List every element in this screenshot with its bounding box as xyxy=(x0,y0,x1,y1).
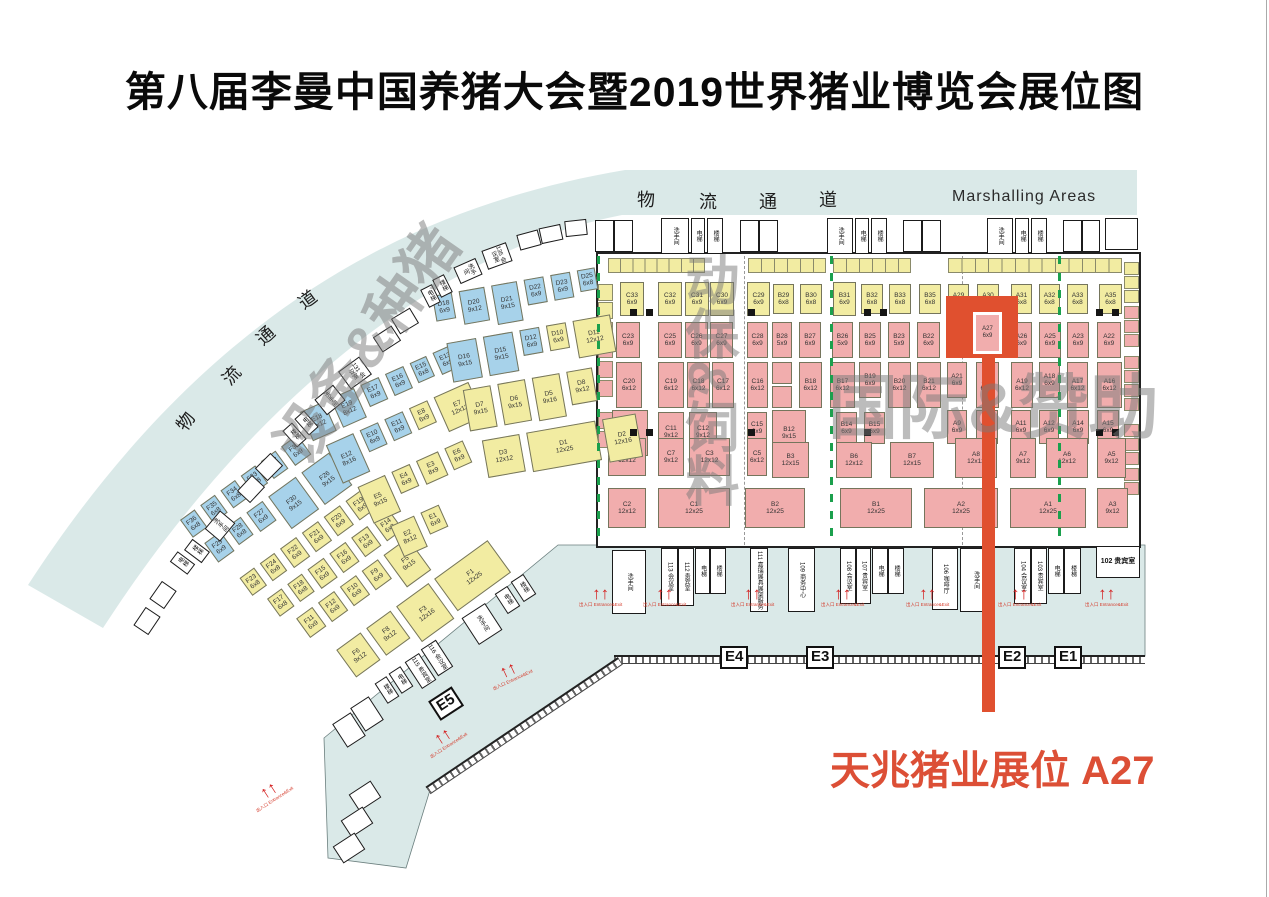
service-room xyxy=(759,220,778,252)
service-room xyxy=(595,220,614,252)
booth-size: 6x8 xyxy=(1044,299,1054,306)
room-102 贵宾室: 102 贵宾室 xyxy=(1096,546,1140,578)
booth-C2: C212x12 xyxy=(608,488,646,528)
booth-size: 6x8 xyxy=(582,279,594,288)
watermark: 动保&饲料 xyxy=(668,252,747,507)
booth-label: B35 xyxy=(924,292,936,299)
service-room xyxy=(922,220,941,252)
booth-size: 6x9 xyxy=(526,341,538,350)
booth-D25: D256x8 xyxy=(577,267,599,292)
booth-size: 12x12 xyxy=(586,335,605,345)
booth-size: 6x9 xyxy=(865,340,875,347)
booth-size: 6x12 xyxy=(803,385,817,392)
booth-label: B28 xyxy=(776,333,788,340)
room-洗手间: 洗手间 xyxy=(661,218,689,254)
room-电梯: 电梯 xyxy=(695,548,710,594)
booth-size: 9x16 xyxy=(542,396,557,406)
gate-label-E3: E3 xyxy=(806,646,834,669)
pillar xyxy=(864,309,871,316)
booth-F10: F106x9 xyxy=(340,575,370,606)
booth-C28: C286x9 xyxy=(747,322,768,358)
booth-size: 6x9 xyxy=(752,340,762,347)
up-arrows-icon: ↑↑ xyxy=(834,586,851,601)
room-109 商务中心: 109 商务中心 xyxy=(788,548,815,612)
booth-label: A22 xyxy=(1103,333,1115,340)
pillar xyxy=(1096,309,1103,316)
booth-label: A1 xyxy=(1044,501,1052,508)
entrance-label: 出入口 Entrance&Exit xyxy=(906,602,949,608)
booth-E4: E46x9 xyxy=(391,464,419,494)
booth-D8: D89x12 xyxy=(566,367,598,405)
booth-label: C28 xyxy=(752,333,764,340)
booth-D23: D236x9 xyxy=(550,272,574,301)
booth-size: 6x8 xyxy=(778,299,788,306)
booth-size: 6x9 xyxy=(839,299,849,306)
booth-E8: E86x9 xyxy=(409,400,437,430)
booth-D5: D59x16 xyxy=(532,373,567,421)
booth-size: 6x9 xyxy=(557,285,569,294)
booth-D12: D126x9 xyxy=(519,327,543,356)
booth-A3: A39x12 xyxy=(1097,488,1128,528)
booth-size: 9x12 xyxy=(467,305,482,315)
booth-label: B12 xyxy=(783,426,795,433)
room-楼梯: 楼梯 xyxy=(888,548,904,594)
booth-B27: B276x9 xyxy=(799,322,821,358)
booth-D7: D79x15 xyxy=(463,385,498,431)
booth-label: C2 xyxy=(623,501,631,508)
booth-size: 6x8 xyxy=(806,299,816,306)
booth-size: 6x9 xyxy=(1104,340,1114,347)
exhibition-floor-plan: 第八届李曼中国养猪大会暨2019世界猪业博览会展位图 Marshalling A… xyxy=(0,0,1269,897)
wall-booth-cell xyxy=(1124,276,1139,289)
wing-cluster-2: D186x9D209x12D219x15D226x9D236x9D256x8D1… xyxy=(432,265,645,497)
pillar xyxy=(630,429,637,436)
gate-label-E2: E2 xyxy=(998,646,1026,669)
booth-F24: F246x8 xyxy=(260,553,287,581)
booth-size: 12x25 xyxy=(1039,508,1057,515)
entrance-label: 出入口 Entrance&Exit xyxy=(1085,602,1128,608)
booth-label: B3 xyxy=(787,453,795,460)
wall-booth-cell xyxy=(1124,334,1139,347)
booth-size: 5x9 xyxy=(777,340,787,347)
booth-F16: F166x9 xyxy=(329,542,359,573)
booth-label: A35 xyxy=(1105,292,1117,299)
up-arrows-icon: ↑↑ xyxy=(1098,586,1115,601)
booth-size: 12x16 xyxy=(614,437,633,447)
page-title: 第八届李曼中国养猪大会暨2019世界猪业博览会展位图 xyxy=(0,58,1269,118)
pillar xyxy=(630,309,637,316)
entrance-label: 出入口 Entrance&Exit xyxy=(643,602,686,608)
booth-label: B22 xyxy=(923,333,935,340)
booth-E2: E28x12 xyxy=(390,516,428,558)
entrance-arrows: ↑↑出入口 Entrance&Exit xyxy=(731,586,774,608)
booth-label: B31 xyxy=(839,292,851,299)
room-电梯: 电梯 xyxy=(691,218,705,254)
booth-size: 6x9 xyxy=(923,340,933,347)
booth-label: A3 xyxy=(1109,501,1117,508)
booth-size: 6x8 xyxy=(1072,299,1082,306)
booth-E5: E59x15 xyxy=(358,475,402,524)
booth-size: 5x9 xyxy=(837,340,847,347)
booth-D21: D219x15 xyxy=(491,281,524,325)
booth-size: 6x8 xyxy=(925,299,935,306)
booth-E3: E38x9 xyxy=(416,451,449,485)
booth-size: 9x15 xyxy=(458,359,473,369)
booth-A32: A326x8 xyxy=(1039,284,1060,314)
booth-size: 12x15 xyxy=(782,460,800,467)
pillar xyxy=(748,309,755,316)
up-arrows-icon: ↑↑ xyxy=(656,586,673,601)
booth-E10: E106x9 xyxy=(360,422,388,452)
booth-D1: D112x25 xyxy=(526,421,602,473)
booth-label: B33 xyxy=(894,292,906,299)
booth-C5: C56x12 xyxy=(747,438,767,476)
entrance-arrows: ↑↑出入口 Entrance&Exit xyxy=(906,586,949,608)
booth-size: 12x25 xyxy=(555,445,574,455)
room-电梯: 电梯 xyxy=(872,548,888,594)
entrance-arrows: ↑↑出入口 Entrance&Exit xyxy=(998,586,1041,608)
up-arrows-icon: ↑↑ xyxy=(592,586,609,601)
booth-label: A33 xyxy=(1072,292,1084,299)
booth-F27: F276x9 xyxy=(246,501,276,532)
booth-size: 6x8 xyxy=(895,299,905,306)
pillar xyxy=(880,309,887,316)
booth-label: A25 xyxy=(1044,333,1056,340)
booth-label: B29 xyxy=(778,292,790,299)
booth-size: 9x15 xyxy=(782,433,796,440)
booth-size: 9x12 xyxy=(575,385,590,395)
fire-lane-dashes xyxy=(597,256,600,542)
service-room xyxy=(1063,220,1082,252)
booth-size: 6x12 xyxy=(750,385,764,392)
highlight-callout-text: 天兆猪业展位 A27 xyxy=(830,738,1155,796)
booth-F23: F236x8 xyxy=(240,568,267,596)
mini-booth-strip xyxy=(833,258,911,273)
service-room xyxy=(740,220,759,252)
booth-label: B26 xyxy=(837,333,849,340)
booth-size: 12x15 xyxy=(903,460,921,467)
booth-size: 6x9 xyxy=(553,336,565,345)
room-楼梯: 楼梯 xyxy=(1064,548,1081,594)
booth-B28: B285x9 xyxy=(772,322,792,358)
booth-F21: F216x9 xyxy=(302,521,332,552)
booth-label: C23 xyxy=(622,333,634,340)
room-电梯: 电梯 xyxy=(1048,548,1064,594)
booth-label: B27 xyxy=(804,333,816,340)
booth-F12: F126x9 xyxy=(318,591,348,622)
wall-booth-cell xyxy=(1124,320,1139,333)
logistics-channel-char: 流 xyxy=(699,188,717,214)
service-room xyxy=(903,220,922,252)
booth-size: 12x12 xyxy=(845,460,863,467)
booth-A33: A336x8 xyxy=(1067,284,1088,314)
booth-label: A23 xyxy=(1072,333,1084,340)
booth-B35: B356x8 xyxy=(919,284,941,314)
logistics-channel-char: 道 xyxy=(819,186,837,212)
booth-label: B30 xyxy=(805,292,817,299)
pillar xyxy=(1112,309,1119,316)
room-电梯: 电梯 xyxy=(855,218,869,254)
entrance-label: 出入口 Entrance&Exit xyxy=(998,602,1041,608)
booth-B31: B316x9 xyxy=(833,282,856,316)
booth-B33: B336x8 xyxy=(889,284,911,314)
booth-size: 6x9 xyxy=(439,306,451,315)
entrance-label: 出入口 Entrance&Exit xyxy=(579,602,622,608)
booth-size: 6x9 xyxy=(623,340,633,347)
booth-label: B23 xyxy=(893,333,905,340)
booth-B3: B312x15 xyxy=(772,442,809,478)
booth-size: 6x9 xyxy=(531,290,543,299)
booth-label: C16 xyxy=(752,378,764,385)
gate-label-E1: E1 xyxy=(1054,646,1082,669)
booth-label: A27 xyxy=(982,326,993,333)
booth-label: C29 xyxy=(753,292,765,299)
booth-E1: E16x9 xyxy=(420,505,448,535)
booth-D16: D169x15 xyxy=(446,338,482,383)
service-room xyxy=(1105,218,1138,250)
booth-size: 6x8 xyxy=(867,299,877,306)
booth-size: 12x25 xyxy=(766,508,784,515)
wall-booth-cell xyxy=(1124,452,1139,465)
entrance-arrows: ↑↑出入口 Entrance&Exit xyxy=(821,586,864,608)
entrance-arrows: ↑↑出入口 Entrance&Exit xyxy=(579,586,622,608)
booth-C16: C166x12 xyxy=(747,362,768,408)
entrance-label: 出入口 Entrance&Exit xyxy=(731,602,774,608)
booth-label: C15 xyxy=(751,421,763,428)
booth-size: 9x12 xyxy=(1016,458,1030,465)
room-楼梯: 楼梯 xyxy=(1031,218,1047,254)
gate-label-E4: E4 xyxy=(720,646,748,669)
booth-size: 12x12 xyxy=(495,454,514,464)
booth-label: B18 xyxy=(805,378,817,385)
booth-B29: B296x8 xyxy=(773,284,794,314)
booth-label: A2 xyxy=(957,501,965,508)
booth-label: B7 xyxy=(908,453,916,460)
booth-label: A32 xyxy=(1044,292,1056,299)
room-洗手间: 洗手间 xyxy=(987,218,1013,254)
booth-size: 6x9 xyxy=(1045,340,1055,347)
booth-label: C33 xyxy=(626,292,638,299)
pillar xyxy=(748,429,755,436)
booth-A1: A112x25 xyxy=(1010,488,1086,528)
booth-small xyxy=(772,386,792,408)
booth-E11: E116x9 xyxy=(384,411,412,441)
room-楼梯: 楼梯 xyxy=(871,218,887,254)
booth-A27-highlighted: A276x9 xyxy=(973,312,1002,354)
booth-small xyxy=(772,362,792,384)
pillar xyxy=(646,309,653,316)
room-楼梯: 楼梯 xyxy=(710,548,726,594)
booth-D6: D69x15 xyxy=(497,379,532,425)
booth-F18: F186x8 xyxy=(287,574,314,602)
entrance-label: 出入口 Entrance&Exit xyxy=(821,602,864,608)
up-arrows-icon: ↑↑ xyxy=(919,586,936,601)
room-电梯: 电梯 xyxy=(1015,218,1029,254)
booth-B2: B212x25 xyxy=(745,488,805,528)
up-arrows-icon: ↑↑ xyxy=(744,586,761,601)
watermark: 国际&赞助 xyxy=(828,352,1159,453)
service-room xyxy=(564,219,588,237)
booth-F11: F116x9 xyxy=(296,607,326,638)
entrance-arrows: ↑↑出入口 Entrance&Exit xyxy=(1085,586,1128,608)
booth-F15: F156x9 xyxy=(307,558,337,589)
booth-D20: D209x12 xyxy=(459,287,491,325)
booth-size: 12x25 xyxy=(685,508,703,515)
booth-D10: D106x9 xyxy=(546,322,570,351)
booth-D15: D159x15 xyxy=(483,332,519,377)
wall-booth-cell xyxy=(1124,468,1139,481)
wall-booth-cell xyxy=(1124,262,1139,275)
booth-size: 12x25 xyxy=(867,508,885,515)
up-arrows-icon: ↑↑ xyxy=(1011,586,1028,601)
booth-D11: D1112x12 xyxy=(572,314,616,358)
mini-booth-strip xyxy=(948,258,1122,273)
booth-D2: D212x16 xyxy=(602,413,643,462)
booth-size: 6x9 xyxy=(753,299,763,306)
booth-size: 12x12 xyxy=(618,508,636,515)
booth-B1: B112x25 xyxy=(840,488,912,528)
booth-size: 12x25 xyxy=(952,508,970,515)
booth-label: C5 xyxy=(753,450,761,457)
booth-F17: F176x8 xyxy=(267,588,294,616)
booth-D22: D226x9 xyxy=(524,276,548,305)
booth-size: 9x15 xyxy=(473,407,488,417)
logistics-channel-char: 物 xyxy=(637,186,655,212)
page-right-border xyxy=(1266,0,1267,897)
booth-size: 9x15 xyxy=(508,401,523,411)
booth-B18: B186x12 xyxy=(799,362,822,408)
mini-booth-strip xyxy=(748,258,826,273)
room-楼梯: 楼梯 xyxy=(707,218,723,254)
booth-size: 6x8 xyxy=(1105,299,1115,306)
booth-size: 6x9 xyxy=(805,340,815,347)
booth-size: 5x9 xyxy=(894,340,904,347)
booth-label: B1 xyxy=(872,501,880,508)
pillar xyxy=(646,429,653,436)
booth-size: 6x9 xyxy=(983,333,993,340)
marshalling-areas-label: Marshalling Areas xyxy=(952,188,1096,206)
booth-size: 9x12 xyxy=(1105,508,1119,515)
logistics-channel-char: 通 xyxy=(759,188,777,214)
room-洗手间: 洗手间 xyxy=(827,218,853,254)
entrance-arrows: ↑↑出入口 Entrance&Exit xyxy=(643,586,686,608)
booth-label: B6 xyxy=(850,453,858,460)
wall-booth-cell xyxy=(1124,290,1139,303)
booth-size: 9x12 xyxy=(1104,458,1118,465)
service-room xyxy=(1082,220,1100,252)
booth-size: 9x15 xyxy=(494,353,509,363)
service-room xyxy=(614,220,633,252)
booth-label: B25 xyxy=(864,333,876,340)
booth-label: B32 xyxy=(866,292,878,299)
booth-size: 9x15 xyxy=(500,302,515,312)
booth-size: 6x9 xyxy=(1073,340,1083,347)
booth-B30: B306x8 xyxy=(800,284,822,314)
booth-size: 6x9 xyxy=(627,299,637,306)
booth-D3: D312x12 xyxy=(482,434,526,478)
wall-booth-cell xyxy=(1124,306,1139,319)
booth-size: 6x12 xyxy=(750,457,764,464)
booth-label: B2 xyxy=(771,501,779,508)
booth-F22: F226x9 xyxy=(280,537,310,568)
